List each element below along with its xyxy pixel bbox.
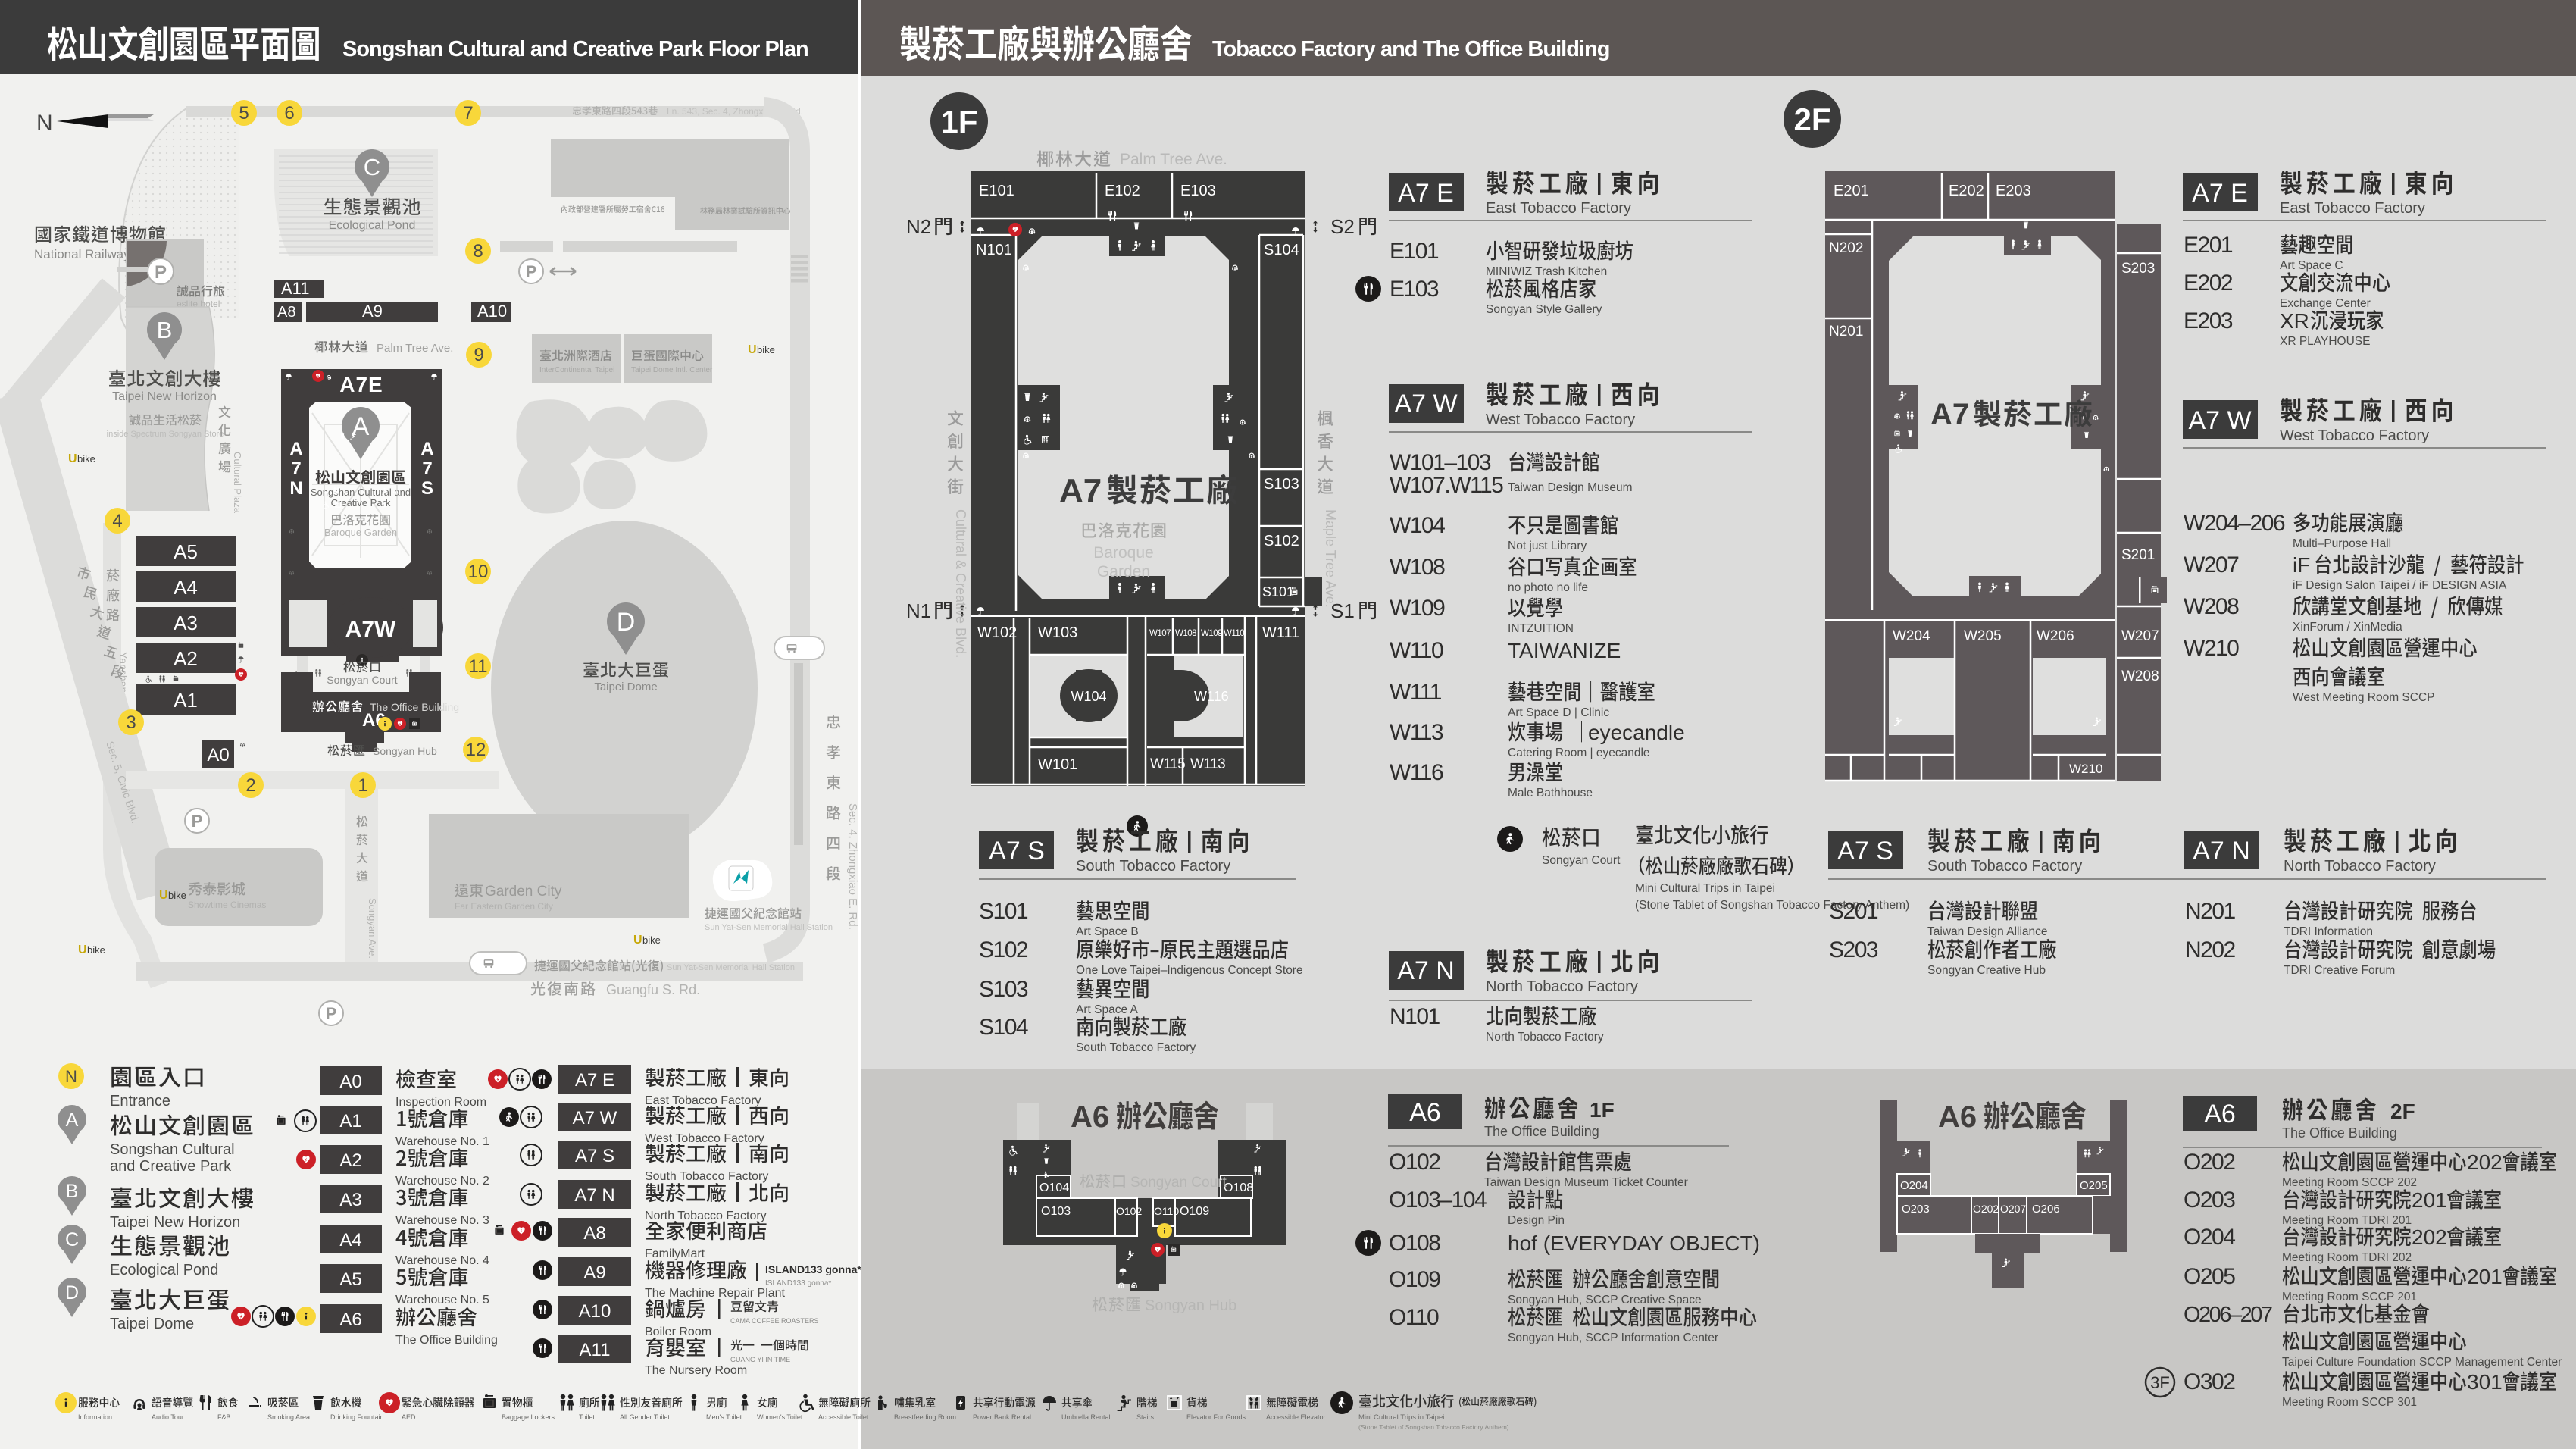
svg-text:A1: A1 <box>339 1111 361 1131</box>
svg-text:W204: W204 <box>1893 628 1930 644</box>
svg-text:S102: S102 <box>979 937 1028 962</box>
svg-text:Catering Room | eyecandle: Catering Room | eyecandle <box>1508 746 1650 759</box>
svg-text:N201: N201 <box>2185 899 2236 924</box>
svg-text:Umbrella Rental: Umbrella Rental <box>1061 1413 1111 1421</box>
svg-text:A: A <box>289 439 302 459</box>
svg-text:(Stone Tablet of Songshan Toba: (Stone Tablet of Songshan Tobacco Factor… <box>1358 1423 1509 1431</box>
svg-text:AED: AED <box>402 1413 416 1421</box>
svg-text:O109: O109 <box>1180 1205 1209 1218</box>
svg-text:E202: E202 <box>2184 271 2233 296</box>
svg-text:Taipei Culture Foundation SCCP: Taipei Culture Foundation SCCP Managemen… <box>2282 1356 2562 1369</box>
svg-text:Taiwan Design Museum Ticket Co: Taiwan Design Museum Ticket Counter <box>1484 1176 1688 1189</box>
svg-text:O108: O108 <box>1389 1231 1440 1256</box>
svg-text:A: A <box>352 412 370 441</box>
svg-text:Sun Yat-Sen Memorial Hall Stat: Sun Yat-Sen Memorial Hall Station <box>667 963 795 972</box>
svg-text:S203: S203 <box>2121 261 2155 277</box>
svg-text:North Tobacco Factory: North Tobacco Factory <box>645 1210 767 1222</box>
svg-text:O103–104: O103–104 <box>1389 1188 1487 1213</box>
svg-text:XR: XR <box>2280 309 2309 333</box>
svg-text:W113: W113 <box>1190 756 1225 772</box>
svg-text:A7E: A7E <box>339 373 383 396</box>
svg-text:East Tobacco Factory: East Tobacco Factory <box>2280 200 2425 217</box>
svg-text:Palm Tree Ave.: Palm Tree Ave. <box>377 342 453 355</box>
svg-text:E203: E203 <box>1996 183 2031 199</box>
svg-text:eyecandle: eyecandle <box>1588 721 1685 744</box>
svg-text:201: 201 <box>2412 1188 2447 1212</box>
svg-text:5: 5 <box>239 103 249 124</box>
svg-text:XinForum / XinMedia: XinForum / XinMedia <box>2293 621 2402 634</box>
svg-text:A6: A6 <box>339 1310 361 1330</box>
svg-text:One Love Taipei–Indigenous Con: One Love Taipei–Indigenous Concept Store <box>1076 964 1303 977</box>
svg-text:10: 10 <box>468 562 489 582</box>
svg-text:West Tobacco Factory: West Tobacco Factory <box>2280 427 2429 444</box>
svg-text:S203: S203 <box>1829 937 1878 962</box>
svg-text:South Tobacco Factory: South Tobacco Factory <box>645 1170 768 1183</box>
svg-text:W115: W115 <box>1150 756 1185 772</box>
svg-text:Exchange Center: Exchange Center <box>2280 297 2371 310</box>
svg-text:hof (EVERYDAY OBJECT): hof (EVERYDAY OBJECT) <box>1508 1231 1760 1255</box>
svg-text:Sun Yat-Sen Memorial Hall Stat: Sun Yat-Sen Memorial Hall Station <box>705 923 833 932</box>
svg-text:West Meeting Room SCCP: West Meeting Room SCCP <box>2293 691 2435 704</box>
svg-text:A7 N: A7 N <box>2193 837 2250 865</box>
svg-text:The Nursery Room: The Nursery Room <box>645 1364 747 1377</box>
svg-text:N2: N2 <box>906 215 931 238</box>
svg-text:W109: W109 <box>1390 596 1445 621</box>
svg-text:O102: O102 <box>1116 1205 1142 1217</box>
svg-text:Far Eastern Garden City: Far Eastern Garden City <box>455 901 553 912</box>
svg-text:W205: W205 <box>1964 628 2002 644</box>
svg-text:W107.W115: W107.W115 <box>1390 473 1503 498</box>
svg-text:A5: A5 <box>339 1269 361 1290</box>
svg-text:S2: S2 <box>1330 215 1355 238</box>
svg-text:Breastfeeding Room: Breastfeeding Room <box>894 1413 956 1421</box>
svg-text:O102: O102 <box>1389 1150 1440 1175</box>
svg-text:The Office Building: The Office Building <box>2282 1125 2397 1141</box>
svg-text:TAIWANIZE: TAIWANIZE <box>1508 639 1621 662</box>
svg-text:W101–103: W101–103 <box>1390 450 1491 475</box>
svg-text:U: U <box>748 343 757 356</box>
svg-text:A10: A10 <box>579 1301 611 1322</box>
svg-text:Boiler Room: Boiler Room <box>645 1325 711 1338</box>
svg-text:Stairs: Stairs <box>1136 1413 1155 1421</box>
svg-text:A5: A5 <box>174 540 198 563</box>
svg-text:8: 8 <box>473 241 483 261</box>
svg-text:E102: E102 <box>1105 183 1140 199</box>
svg-text:A: A <box>66 1109 79 1131</box>
svg-text:A7 S: A7 S <box>575 1146 614 1166</box>
svg-text:Songyan Style Gallery: Songyan Style Gallery <box>1486 303 1602 316</box>
svg-text:1: 1 <box>358 775 367 796</box>
svg-text:Taipei Dome: Taipei Dome <box>110 1316 194 1332</box>
svg-text:E201: E201 <box>1834 183 1869 199</box>
svg-text:U: U <box>68 452 77 465</box>
svg-text:P: P <box>526 262 537 281</box>
svg-text:A7 W: A7 W <box>573 1108 617 1128</box>
svg-text:Songshan Cultural and Creative: Songshan Cultural and Creative Park Floo… <box>342 37 808 61</box>
svg-text:Meeting Room SCCP 301: Meeting Room SCCP 301 <box>2282 1396 2417 1409</box>
svg-text:Inspection Room: Inspection Room <box>395 1096 486 1109</box>
svg-text:Warehouse No. 2: Warehouse No. 2 <box>395 1175 489 1188</box>
svg-text:iF Design Salon Taipei / iF DE: iF Design Salon Taipei / iF DESIGN ASIA <box>2293 579 2507 592</box>
svg-text:7: 7 <box>463 103 473 124</box>
svg-text:Creative Park: Creative Park <box>331 497 391 509</box>
svg-text:A3: A3 <box>339 1190 361 1210</box>
svg-text:Elevator For Goods: Elevator For Goods <box>1186 1413 1246 1421</box>
svg-text:Songshan Cultural: Songshan Cultural <box>110 1141 235 1158</box>
svg-text:O202: O202 <box>1973 1203 1999 1215</box>
svg-text:South Tobacco Factory: South Tobacco Factory <box>1927 858 2082 875</box>
svg-text:Songyan Hub, SCCP Information: Songyan Hub, SCCP Information Center <box>1508 1332 1718 1344</box>
svg-text:P: P <box>192 812 203 831</box>
svg-text:O104: O104 <box>1039 1181 1069 1194</box>
svg-text:A8: A8 <box>583 1223 605 1244</box>
svg-text:Women's Toilet: Women's Toilet <box>757 1413 803 1421</box>
svg-text:Men's Toilet: Men's Toilet <box>706 1413 742 1421</box>
svg-text:Toilet: Toilet <box>579 1413 596 1421</box>
svg-text:All Gender Toilet: All Gender Toilet <box>620 1413 670 1421</box>
svg-text:E201: E201 <box>2184 233 2233 258</box>
svg-text:Songyan Court: Songyan Court <box>327 674 398 686</box>
svg-text:W110: W110 <box>1390 638 1443 663</box>
svg-text:W116: W116 <box>1390 760 1443 785</box>
svg-text:Songyan Creative Hub: Songyan Creative Hub <box>1927 964 2046 977</box>
svg-text:Warehouse No. 5: Warehouse No. 5 <box>395 1294 489 1307</box>
svg-text:Garden: Garden <box>1097 563 1150 581</box>
svg-text:bike: bike <box>77 453 95 465</box>
svg-text:A7: A7 <box>1059 472 1102 509</box>
svg-text:Multi–Purpose Hall: Multi–Purpose Hall <box>2293 537 2391 550</box>
svg-text:Songyan Hub, SCCP Creative Spa: Songyan Hub, SCCP Creative Space <box>1508 1294 1702 1307</box>
svg-text:W207: W207 <box>2184 552 2239 577</box>
svg-text:TDRI Information: TDRI Information <box>2284 925 2373 938</box>
svg-text:GUANG YI IN TIME: GUANG YI IN TIME <box>730 1356 790 1363</box>
svg-text:Cultural & Creative Blvd.: Cultural & Creative Blvd. <box>953 509 968 658</box>
svg-text:3F: 3F <box>2150 1373 2170 1392</box>
svg-text:and Creative Park: and Creative Park <box>110 1158 232 1175</box>
svg-text:Palm Tree Ave.: Palm Tree Ave. <box>1120 151 1227 168</box>
svg-text:E101: E101 <box>1390 239 1439 264</box>
svg-text:202: 202 <box>2412 1225 2447 1249</box>
svg-text:A: A <box>420 439 433 459</box>
svg-text:7: 7 <box>291 458 301 479</box>
svg-text:S103: S103 <box>1264 476 1299 493</box>
svg-text:W208: W208 <box>2184 594 2239 619</box>
svg-text:E202: E202 <box>1949 183 1984 199</box>
svg-text:Songyan Court: Songyan Court <box>1542 854 1621 867</box>
svg-text:A6: A6 <box>1409 1098 1441 1127</box>
svg-text:U: U <box>633 934 642 947</box>
svg-text:C: C <box>364 154 380 180</box>
svg-text:A10: A10 <box>477 302 507 321</box>
svg-text:Accessible Elevator: Accessible Elevator <box>1266 1413 1326 1421</box>
svg-text:W101: W101 <box>1038 756 1077 773</box>
svg-text:O203: O203 <box>1902 1203 1930 1216</box>
svg-text:A6: A6 <box>2204 1100 2236 1128</box>
svg-text:A1: A1 <box>174 689 198 712</box>
svg-text:ISLAND133 gonna*: ISLAND133 gonna* <box>765 1263 861 1275</box>
svg-text:202: 202 <box>2467 1150 2503 1174</box>
svg-text:Audio Tour: Audio Tour <box>152 1413 184 1421</box>
svg-text:Design Pin: Design Pin <box>1508 1214 1565 1227</box>
svg-text:Accessible Toilet: Accessible Toilet <box>818 1413 869 1421</box>
svg-text:Taipei New Horizon: Taipei New Horizon <box>112 390 217 403</box>
svg-text:E103: E103 <box>1180 183 1216 199</box>
svg-text:West Tobacco Factory: West Tobacco Factory <box>1486 412 1635 428</box>
svg-text:C: C <box>65 1229 79 1250</box>
svg-text:Art Space B: Art Space B <box>1076 925 1139 938</box>
svg-text:South Tobacco Factory: South Tobacco Factory <box>1076 858 1230 875</box>
svg-text:N: N <box>65 1067 77 1086</box>
svg-text:A7 E: A7 E <box>1398 179 1454 208</box>
svg-text:O202: O202 <box>2184 1150 2235 1175</box>
svg-text:East Tobacco Factory: East Tobacco Factory <box>1486 200 1631 217</box>
svg-text:O206–207: O206–207 <box>2184 1303 2272 1327</box>
svg-text:N101: N101 <box>976 242 1012 258</box>
svg-text:The Office Building: The Office Building <box>395 1334 498 1347</box>
svg-text:2F: 2F <box>1793 102 1830 137</box>
svg-text:Male Bathhouse: Male Bathhouse <box>1508 787 1593 800</box>
svg-text:1F: 1F <box>1590 1098 1615 1122</box>
svg-text:Warehouse No. 3: Warehouse No. 3 <box>395 1214 489 1227</box>
svg-text:A11: A11 <box>580 1340 611 1360</box>
svg-text:A7 W: A7 W <box>2188 406 2251 435</box>
svg-text:O204: O204 <box>1900 1179 1928 1192</box>
svg-text:A7W: A7W <box>345 617 396 642</box>
svg-text:W109: W109 <box>1201 629 1222 638</box>
svg-text:A8: A8 <box>277 304 295 321</box>
svg-text:S: S <box>421 478 433 499</box>
svg-text:Taipei Dome Intl. Center: Taipei Dome Intl. Center <box>631 366 713 374</box>
svg-text:11: 11 <box>469 656 488 677</box>
svg-text:12: 12 <box>466 740 486 760</box>
svg-text:A7 N: A7 N <box>574 1185 614 1206</box>
svg-text:North Tobacco Factory: North Tobacco Factory <box>2284 858 2436 875</box>
svg-text:Mini Cultural Trips in Taipei: Mini Cultural Trips in Taipei <box>1358 1413 1444 1422</box>
svg-text:S101: S101 <box>1262 584 1294 599</box>
svg-text:P: P <box>155 262 167 283</box>
svg-text:A7 S: A7 S <box>1837 837 1893 865</box>
svg-text:N201: N201 <box>1829 324 1863 340</box>
svg-text:1F: 1F <box>940 104 977 139</box>
svg-text:Cultural Plaza: Cultural Plaza <box>232 452 243 514</box>
svg-text:CAMA COFFEE ROASTERS: CAMA COFFEE ROASTERS <box>730 1317 819 1325</box>
svg-text:A4: A4 <box>174 576 198 599</box>
svg-text:InterContinental Taipei: InterContinental Taipei <box>539 366 614 374</box>
svg-text:W110: W110 <box>1224 629 1244 638</box>
svg-text:Power Bank Rental: Power Bank Rental <box>973 1413 1031 1421</box>
svg-text:W102: W102 <box>977 624 1017 641</box>
svg-text:9: 9 <box>474 345 483 365</box>
svg-text:W107: W107 <box>1149 629 1171 638</box>
svg-text:Maple Tree Ave.: Maple Tree Ave. <box>1323 509 1338 608</box>
svg-text:U: U <box>159 889 168 902</box>
svg-text:A11: A11 <box>281 279 310 298</box>
svg-text:A7 E: A7 E <box>575 1070 614 1091</box>
svg-text:W208: W208 <box>2121 668 2159 684</box>
svg-text:W204–206: W204–206 <box>2184 511 2285 536</box>
svg-text:7: 7 <box>422 458 432 479</box>
svg-text:D: D <box>617 608 636 637</box>
svg-text:Art Space D | Clinic: Art Space D | Clinic <box>1508 706 1609 719</box>
svg-text:Ecological Pond: Ecological Pond <box>110 1262 218 1278</box>
svg-text:E203: E203 <box>2184 308 2233 333</box>
svg-text:Art Space C: Art Space C <box>2280 259 2343 272</box>
svg-text:Taipei Dome: Taipei Dome <box>594 681 657 693</box>
svg-text:S201: S201 <box>2121 547 2155 563</box>
svg-text:W104: W104 <box>1071 689 1106 704</box>
svg-text:bike: bike <box>642 934 661 946</box>
svg-text:inside Spectrum Songyan Store: inside Spectrum Songyan Store <box>107 430 224 439</box>
svg-text:MINIWIZ Trash Kitchen: MINIWIZ Trash Kitchen <box>1486 265 1607 278</box>
svg-text:bike: bike <box>757 344 775 355</box>
svg-text:6: 6 <box>284 103 294 124</box>
svg-text:A9: A9 <box>583 1263 605 1283</box>
svg-text:3: 3 <box>126 712 136 733</box>
svg-text:no photo no life: no photo no life <box>1508 581 1588 594</box>
svg-text:Songyan Hub: Songyan Hub <box>373 745 437 757</box>
svg-text:Ecological Pond: Ecological Pond <box>329 219 416 232</box>
svg-text:P: P <box>326 1004 337 1023</box>
svg-text:Baroque: Baroque <box>1093 544 1153 562</box>
svg-text:N: N <box>289 478 302 499</box>
svg-text:Taiwan Design Alliance: Taiwan Design Alliance <box>1927 925 2048 938</box>
svg-text:A6: A6 <box>1071 1100 1109 1134</box>
svg-text:O302: O302 <box>2184 1369 2235 1394</box>
svg-text:W210: W210 <box>2184 636 2239 661</box>
svg-text:201: 201 <box>2467 1265 2503 1288</box>
svg-text:O109: O109 <box>1389 1267 1440 1292</box>
svg-text:E101: E101 <box>979 183 1014 199</box>
svg-text:A7 E: A7 E <box>2192 179 2248 208</box>
svg-text:A2: A2 <box>339 1150 361 1171</box>
svg-text:W104: W104 <box>1390 513 1445 538</box>
svg-text:South Tobacco Factory: South Tobacco Factory <box>1076 1041 1196 1054</box>
svg-text:North Tobacco Factory: North Tobacco Factory <box>1486 1031 1604 1044</box>
svg-text:Guangfu S. Rd.: Guangfu S. Rd. <box>606 982 700 997</box>
svg-text:bike: bike <box>87 944 105 956</box>
svg-text:Taipei New Horizon: Taipei New Horizon <box>110 1214 240 1231</box>
svg-text:Entrance: Entrance <box>110 1093 170 1109</box>
svg-text:S104: S104 <box>1264 242 1299 258</box>
svg-text:XR PLAYHOUSE: XR PLAYHOUSE <box>2280 335 2370 348</box>
svg-text:Smoking Area: Smoking Area <box>267 1413 310 1421</box>
svg-text:O205: O205 <box>2184 1264 2235 1289</box>
svg-text:Tobacco Factory and The Office: Tobacco Factory and The Office Building <box>1212 37 1609 61</box>
svg-text:Warehouse No. 1: Warehouse No. 1 <box>395 1135 489 1148</box>
svg-text:Information: Information <box>78 1413 112 1421</box>
svg-text:S101: S101 <box>979 899 1028 924</box>
svg-text:W103: W103 <box>1038 624 1077 641</box>
svg-text:Baroque Garden: Baroque Garden <box>324 527 397 538</box>
svg-text:A6: A6 <box>1938 1100 1977 1134</box>
svg-text:N202: N202 <box>2185 937 2236 962</box>
svg-text:Songyan Hub: Songyan Hub <box>1145 1297 1236 1314</box>
svg-text:A4: A4 <box>339 1230 361 1250</box>
svg-text:North Tobacco Factory: North Tobacco Factory <box>1486 978 1638 995</box>
svg-text:A2: A2 <box>174 647 198 670</box>
svg-text:Meeting Room TDRI 202: Meeting Room TDRI 202 <box>2282 1251 2412 1264</box>
svg-text:O108: O108 <box>1224 1181 1253 1194</box>
svg-text:A0: A0 <box>339 1072 361 1092</box>
svg-text:East Tobacco Factory: East Tobacco Factory <box>645 1094 761 1107</box>
svg-text:West Tobacco Factory: West Tobacco Factory <box>645 1132 764 1145</box>
svg-text:O207: O207 <box>2000 1203 2026 1215</box>
svg-text:N202: N202 <box>1829 240 1863 256</box>
svg-text:A3: A3 <box>174 612 198 634</box>
svg-text:Art Space A: Art Space A <box>1076 1003 1139 1016</box>
svg-text:4: 4 <box>112 511 122 531</box>
svg-text:TDRI Creative Forum: TDRI Creative Forum <box>2284 964 2395 977</box>
svg-text:O206: O206 <box>2032 1203 2060 1216</box>
svg-text:W108: W108 <box>1175 629 1196 638</box>
svg-text:B: B <box>66 1181 79 1202</box>
svg-text:N101: N101 <box>1390 1004 1440 1029</box>
svg-text:The Office Building: The Office Building <box>1484 1124 1599 1139</box>
svg-text:Drinking Fountain: Drinking Fountain <box>330 1413 384 1421</box>
svg-text:W207: W207 <box>2121 628 2159 644</box>
svg-text:W108: W108 <box>1390 555 1445 580</box>
svg-text:Warehouse No. 4: Warehouse No. 4 <box>395 1254 489 1267</box>
svg-text:Showtime Cinemas: Showtime Cinemas <box>188 900 266 910</box>
svg-text:A9: A9 <box>362 302 383 321</box>
svg-text:D: D <box>65 1282 79 1303</box>
svg-text:O203: O203 <box>2184 1188 2235 1213</box>
svg-text:F&B: F&B <box>217 1413 231 1421</box>
svg-text:W113: W113 <box>1390 720 1443 745</box>
svg-text:W111: W111 <box>1262 624 1299 641</box>
svg-text:A7 W: A7 W <box>1394 390 1457 418</box>
svg-text:Songyan Ave.: Songyan Ave. <box>367 898 378 959</box>
svg-text:O110: O110 <box>1389 1305 1439 1330</box>
svg-text:S201: S201 <box>1829 899 1878 924</box>
svg-text:2F: 2F <box>2390 1100 2415 1123</box>
svg-text:Garden City: Garden City <box>485 884 562 900</box>
svg-text:O103: O103 <box>1041 1205 1071 1218</box>
svg-text:N: N <box>36 111 53 136</box>
svg-text:Baggage Lockers: Baggage Lockers <box>502 1413 555 1421</box>
svg-text:2: 2 <box>245 775 255 796</box>
svg-text:O205: O205 <box>2080 1179 2108 1192</box>
svg-text:Meeting Room SCCP 201: Meeting Room SCCP 201 <box>2282 1291 2417 1303</box>
svg-text:Sec. 4, Zhongxiao E. Rd.: Sec. 4, Zhongxiao E. Rd. <box>846 803 859 930</box>
svg-text:S103: S103 <box>979 977 1028 1002</box>
svg-text:O204: O204 <box>2184 1225 2235 1250</box>
svg-text:A7: A7 <box>1930 398 1969 431</box>
svg-text:Mini Cultural Trips in Taipei: Mini Cultural Trips in Taipei <box>1635 882 1775 895</box>
svg-text:The Machine Repair Plant: The Machine Repair Plant <box>645 1287 786 1300</box>
svg-text:U: U <box>78 944 87 956</box>
svg-text:W206: W206 <box>2037 628 2074 644</box>
svg-text:INTZUITION: INTZUITION <box>1508 622 1574 635</box>
svg-text:A7 S: A7 S <box>989 837 1045 865</box>
svg-text:Meeting Room TDRI 201: Meeting Room TDRI 201 <box>2282 1214 2412 1227</box>
svg-text:A0: A0 <box>207 745 229 765</box>
svg-text:Meeting Room SCCP 202: Meeting Room SCCP 202 <box>2282 1176 2417 1189</box>
svg-text:A7 N: A7 N <box>1397 956 1455 985</box>
svg-text:iF: iF <box>2293 553 2310 577</box>
svg-text:S102: S102 <box>1264 533 1299 549</box>
svg-text:S104: S104 <box>979 1015 1028 1040</box>
svg-text:Taiwan Design Museum: Taiwan Design Museum <box>1508 481 1633 494</box>
svg-text:FamilyMart: FamilyMart <box>645 1247 705 1260</box>
svg-text:bike: bike <box>168 890 186 901</box>
svg-text:N1: N1 <box>906 599 931 622</box>
svg-text:W210: W210 <box>2069 762 2102 776</box>
svg-text:W111: W111 <box>1390 680 1442 705</box>
svg-text:Songyan Court: Songyan Court <box>1130 1175 1227 1191</box>
svg-text:Not just Library: Not just Library <box>1508 540 1587 552</box>
svg-text:B: B <box>157 317 173 343</box>
